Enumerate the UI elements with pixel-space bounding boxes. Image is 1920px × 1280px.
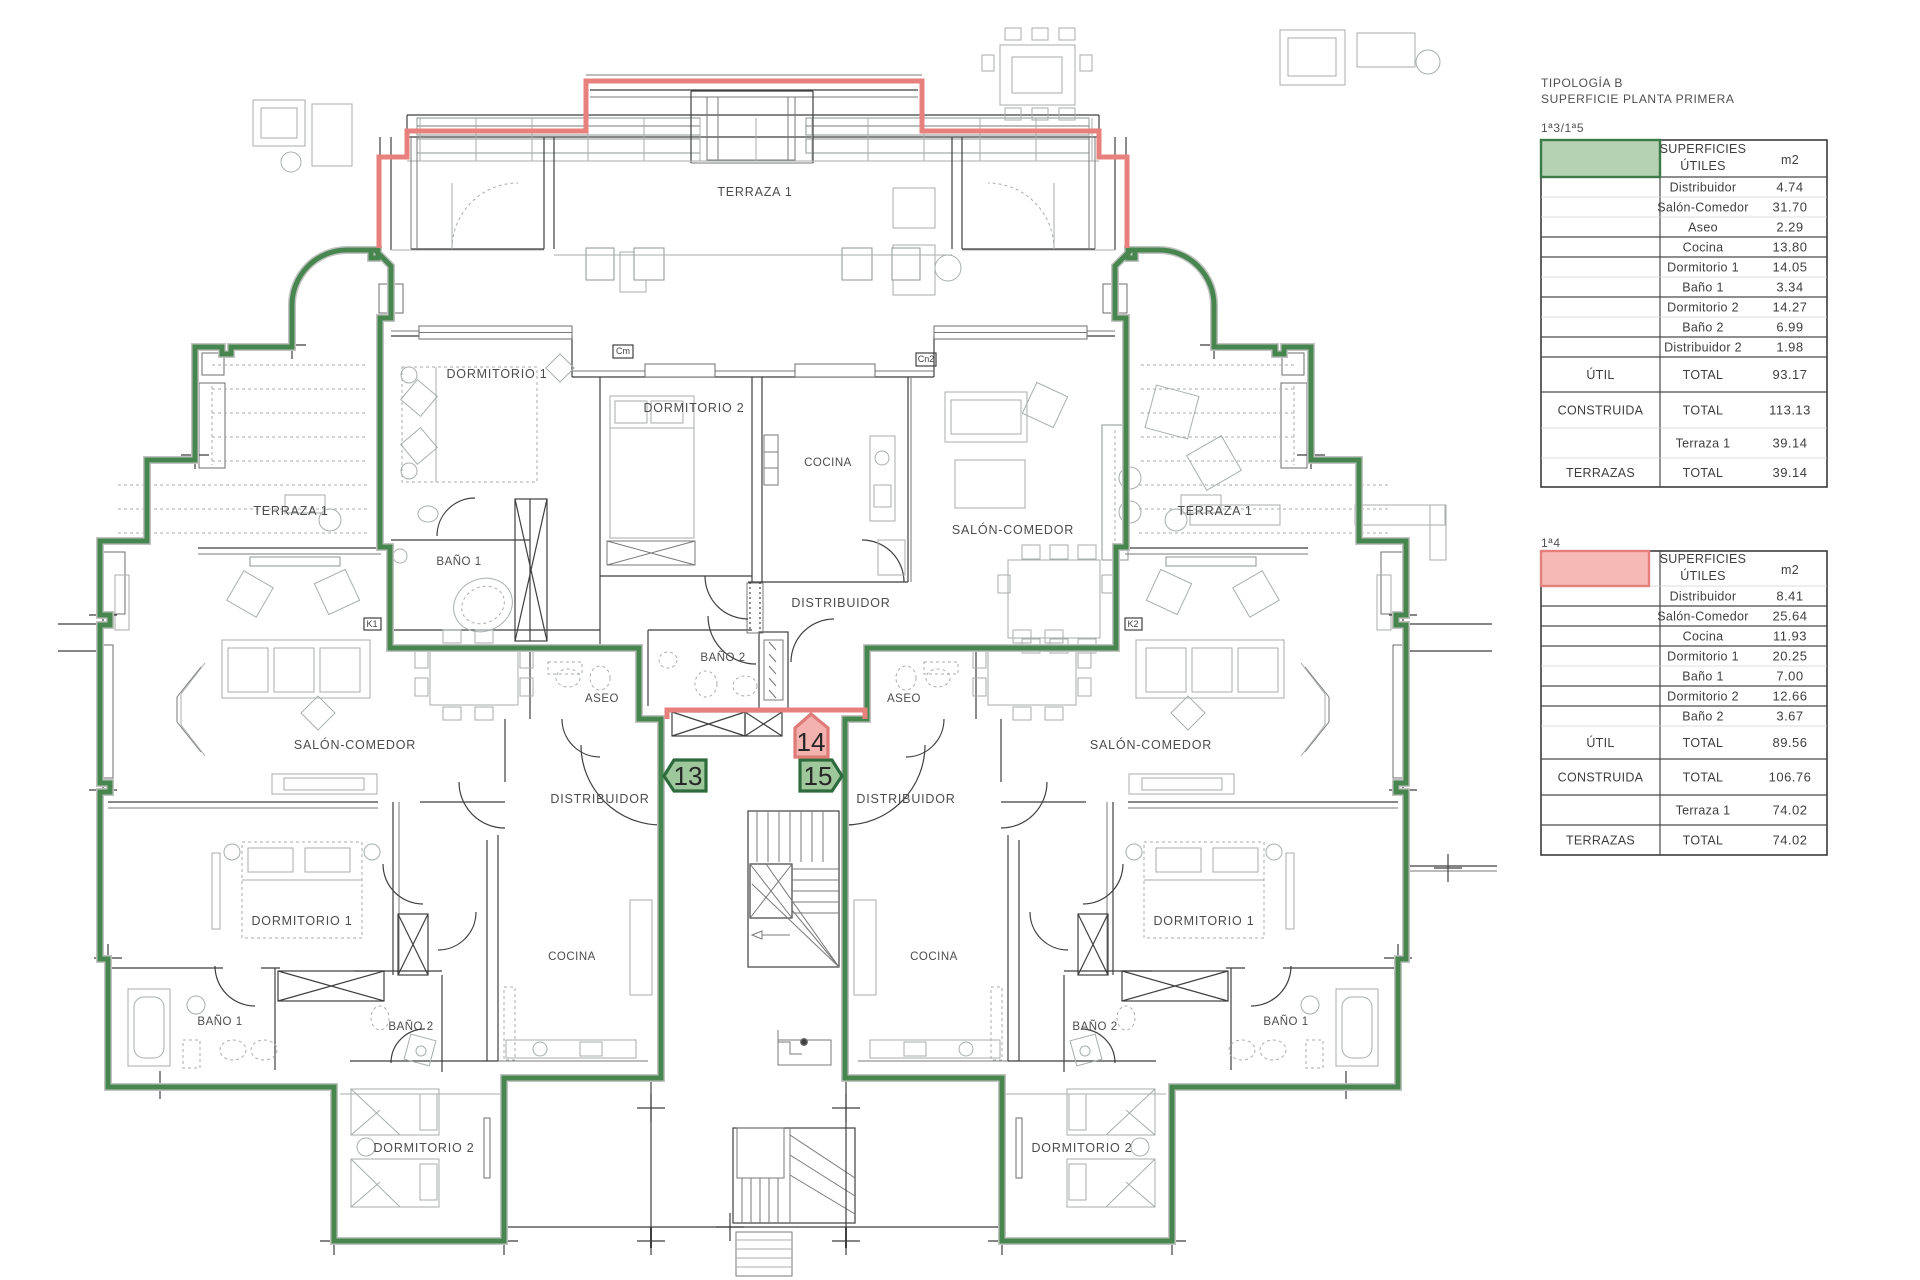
svg-text:Baño 2: Baño 2 <box>1682 710 1723 724</box>
svg-text:2.29: 2.29 <box>1776 220 1803 235</box>
svg-text:1.98: 1.98 <box>1776 340 1803 355</box>
svg-text:DORMITORIO 1: DORMITORIO 1 <box>1153 914 1254 928</box>
svg-text:ASEO: ASEO <box>585 693 619 705</box>
svg-text:DISTRIBUIDOR: DISTRIBUIDOR <box>550 792 649 806</box>
svg-text:DORMITORIO 1: DORMITORIO 1 <box>251 914 352 928</box>
svg-text:14.27: 14.27 <box>1772 300 1807 315</box>
svg-text:TERRAZA 1: TERRAZA 1 <box>717 185 792 199</box>
svg-text:Salón-Comedor: Salón-Comedor <box>1657 610 1748 624</box>
svg-text:Distribuidor: Distribuidor <box>1670 590 1737 604</box>
svg-text:TOTAL: TOTAL <box>1683 368 1724 382</box>
svg-text:BAÑO 1: BAÑO 1 <box>197 1015 242 1028</box>
svg-text:20.25: 20.25 <box>1772 649 1807 664</box>
svg-text:ASEO: ASEO <box>887 693 921 705</box>
svg-text:SUPERFICIES: SUPERFICIES <box>1660 552 1747 566</box>
svg-text:7.00: 7.00 <box>1776 669 1803 684</box>
svg-text:TOTAL: TOTAL <box>1683 404 1724 418</box>
svg-text:BAÑO 1: BAÑO 1 <box>436 555 481 568</box>
svg-text:SUPERFICIE PLANTA PRIMERA: SUPERFICIE PLANTA PRIMERA <box>1541 92 1734 106</box>
svg-text:DISTRIBUIDOR: DISTRIBUIDOR <box>791 596 890 610</box>
svg-text:Cm: Cm <box>616 346 630 356</box>
svg-text:Dormitorio 1: Dormitorio 1 <box>1667 261 1739 275</box>
svg-text:Cn2: Cn2 <box>918 354 935 364</box>
svg-text:Baño 1: Baño 1 <box>1682 281 1723 295</box>
svg-text:89.56: 89.56 <box>1772 735 1807 750</box>
svg-text:4.74: 4.74 <box>1776 180 1803 195</box>
svg-text:COCINA: COCINA <box>804 457 852 469</box>
svg-text:DORMITORIO 2: DORMITORIO 2 <box>373 1141 474 1155</box>
svg-text:BAÑO 2: BAÑO 2 <box>700 651 745 664</box>
svg-text:Terraza 1: Terraza 1 <box>1676 804 1731 818</box>
svg-text:Distribuidor 2: Distribuidor 2 <box>1664 341 1742 355</box>
svg-text:3.67: 3.67 <box>1776 709 1803 724</box>
svg-text:K2: K2 <box>1127 619 1138 629</box>
svg-text:TOTAL: TOTAL <box>1683 736 1724 750</box>
svg-text:Terraza 1: Terraza 1 <box>1676 437 1731 451</box>
svg-text:DORMITORIO 1: DORMITORIO 1 <box>446 367 547 381</box>
svg-text:25.64: 25.64 <box>1772 609 1807 624</box>
svg-text:Distribuidor: Distribuidor <box>1670 181 1737 195</box>
svg-text:113.13: 113.13 <box>1769 403 1811 418</box>
svg-text:Baño 2: Baño 2 <box>1682 321 1723 335</box>
svg-text:39.14: 39.14 <box>1772 436 1807 451</box>
svg-text:74.02: 74.02 <box>1772 833 1807 848</box>
svg-text:TOTAL: TOTAL <box>1683 466 1724 480</box>
svg-text:3.34: 3.34 <box>1776 280 1803 295</box>
svg-text:6.99: 6.99 <box>1776 320 1803 335</box>
svg-text:74.02: 74.02 <box>1772 803 1807 818</box>
svg-text:TIPOLOGÍA B: TIPOLOGÍA B <box>1541 75 1623 90</box>
svg-text:12.66: 12.66 <box>1772 689 1807 704</box>
svg-text:ÚTIL: ÚTIL <box>1586 367 1614 382</box>
svg-text:CONSTRUIDA: CONSTRUIDA <box>1558 771 1644 785</box>
svg-text:1ª4: 1ª4 <box>1541 536 1561 550</box>
svg-text:39.14: 39.14 <box>1772 465 1807 480</box>
svg-text:BAÑO 2: BAÑO 2 <box>1072 1020 1117 1033</box>
svg-text:TERRAZAS: TERRAZAS <box>1566 834 1635 848</box>
svg-text:SALÓN-COMEDOR: SALÓN-COMEDOR <box>952 522 1074 537</box>
svg-text:15: 15 <box>804 761 833 791</box>
svg-text:31.70: 31.70 <box>1772 200 1807 215</box>
svg-text:106.76: 106.76 <box>1769 770 1812 785</box>
svg-text:DORMITORIO 2: DORMITORIO 2 <box>1031 1141 1132 1155</box>
svg-text:BAÑO 1: BAÑO 1 <box>1263 1015 1308 1028</box>
svg-text:Cocina: Cocina <box>1683 241 1724 255</box>
svg-text:TOTAL: TOTAL <box>1683 834 1724 848</box>
svg-text:11.93: 11.93 <box>1773 629 1807 644</box>
svg-text:13: 13 <box>674 761 703 791</box>
svg-text:TERRAZAS: TERRAZAS <box>1566 466 1635 480</box>
svg-text:13.80: 13.80 <box>1772 240 1807 255</box>
svg-text:TERRAZA 1: TERRAZA 1 <box>1177 504 1252 518</box>
svg-text:1ª3/1ª5: 1ª3/1ª5 <box>1541 121 1584 135</box>
svg-text:SALÓN-COMEDOR: SALÓN-COMEDOR <box>1090 737 1212 752</box>
svg-text:Aseo: Aseo <box>1688 221 1718 235</box>
svg-text:ÚTILES: ÚTILES <box>1680 158 1726 173</box>
svg-text:DORMITORIO 2: DORMITORIO 2 <box>643 401 744 415</box>
svg-text:SUPERFICIES: SUPERFICIES <box>1660 142 1747 156</box>
svg-text:TERRAZA 1: TERRAZA 1 <box>253 504 328 518</box>
svg-text:m2: m2 <box>1781 153 1799 167</box>
svg-text:Dormitorio 2: Dormitorio 2 <box>1667 690 1739 704</box>
svg-text:CONSTRUIDA: CONSTRUIDA <box>1558 404 1644 418</box>
svg-text:Dormitorio 1: Dormitorio 1 <box>1667 650 1739 664</box>
svg-text:COCINA: COCINA <box>548 951 596 963</box>
svg-text:ÚTIL: ÚTIL <box>1586 735 1614 750</box>
svg-text:Dormitorio 2: Dormitorio 2 <box>1667 301 1739 315</box>
svg-text:TOTAL: TOTAL <box>1683 771 1724 785</box>
svg-text:Baño 1: Baño 1 <box>1682 670 1723 684</box>
svg-text:ÚTILES: ÚTILES <box>1680 568 1726 583</box>
svg-text:14.05: 14.05 <box>1772 260 1807 275</box>
svg-text:93.17: 93.17 <box>1772 367 1807 382</box>
svg-text:8.41: 8.41 <box>1776 589 1803 604</box>
svg-text:14: 14 <box>797 727 826 757</box>
svg-text:SALÓN-COMEDOR: SALÓN-COMEDOR <box>294 737 416 752</box>
svg-text:Cocina: Cocina <box>1683 630 1724 644</box>
svg-text:Salón-Comedor: Salón-Comedor <box>1657 201 1748 215</box>
svg-text:DISTRIBUIDOR: DISTRIBUIDOR <box>856 792 955 806</box>
svg-text:BAÑO 2: BAÑO 2 <box>388 1020 433 1033</box>
svg-text:COCINA: COCINA <box>910 951 958 963</box>
svg-text:m2: m2 <box>1781 563 1799 577</box>
svg-text:K1: K1 <box>366 619 377 629</box>
